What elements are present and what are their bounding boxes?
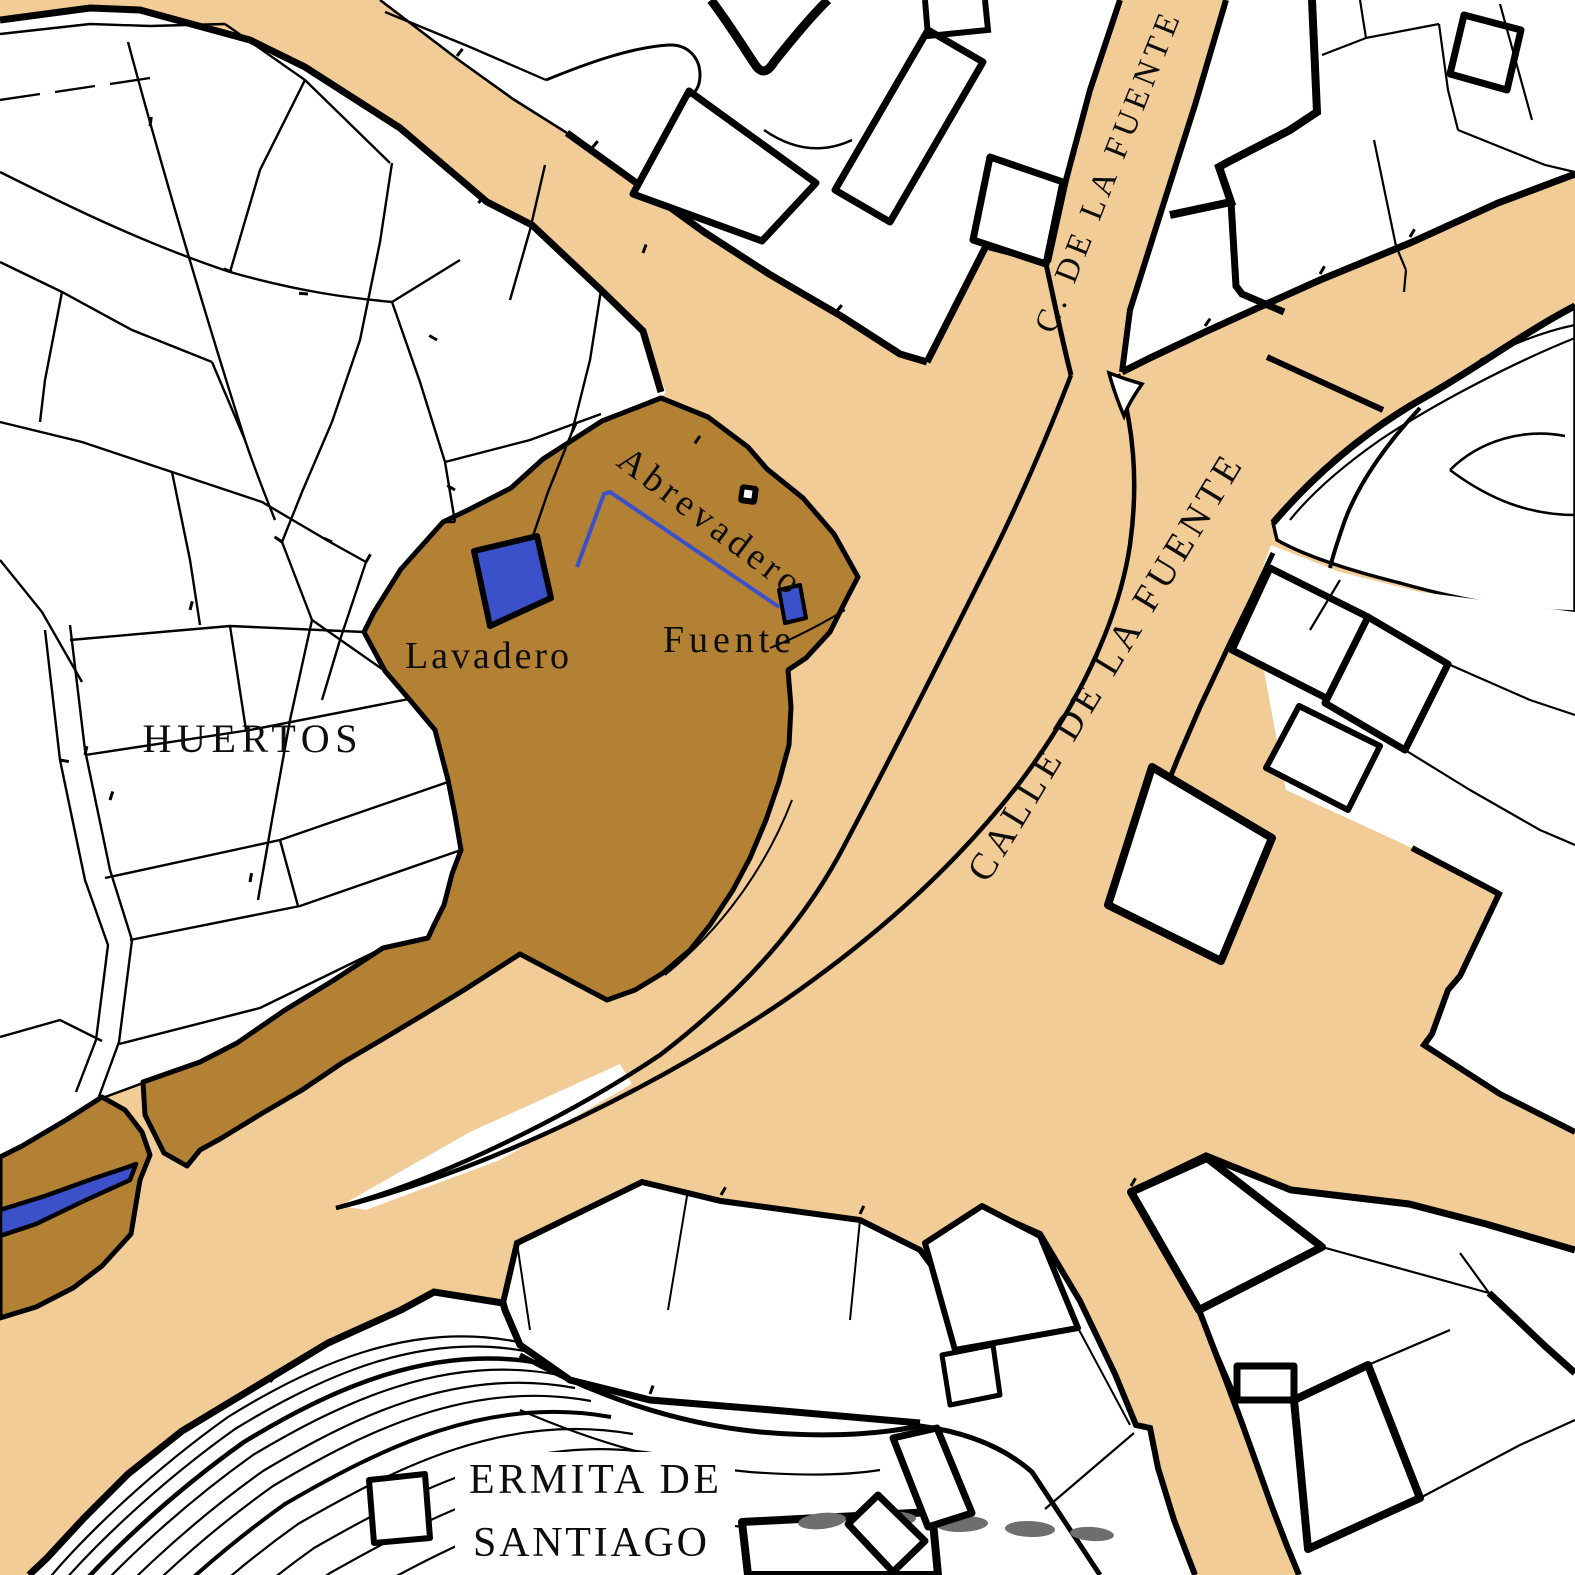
svg-text:SANTIAGO: SANTIAGO <box>473 1520 707 1566</box>
svg-text:ERMITA DE: ERMITA DE <box>469 1457 719 1503</box>
